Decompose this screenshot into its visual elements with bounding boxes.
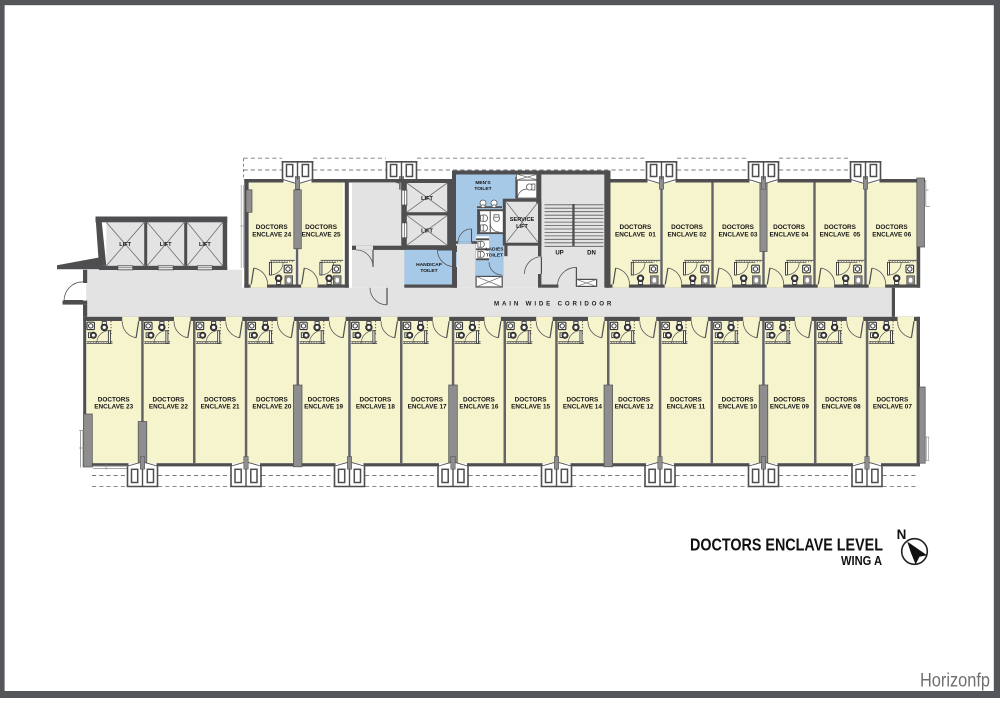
svg-text:LIFT: LIFT	[160, 242, 172, 248]
svg-text:ENCLAVE 24: ENCLAVE 24	[252, 231, 291, 238]
svg-text:DOCTORS: DOCTORS	[773, 396, 806, 403]
svg-text:DOCTORS: DOCTORS	[359, 396, 392, 403]
svg-text:DOCTORS: DOCTORS	[773, 224, 806, 231]
svg-text:ENCLAVE 25: ENCLAVE 25	[302, 231, 341, 238]
svg-text:ENCLAVE 14: ENCLAVE 14	[563, 404, 602, 411]
svg-text:ENCLAVE 02: ENCLAVE 02	[668, 231, 707, 238]
svg-text:DOCTORS: DOCTORS	[204, 396, 237, 403]
svg-text:DOCTORS: DOCTORS	[305, 224, 338, 231]
svg-text:ENCLAVE 10: ENCLAVE 10	[718, 404, 757, 411]
svg-text:DOCTORS: DOCTORS	[825, 396, 858, 403]
svg-text:UP: UP	[555, 250, 563, 256]
svg-text:ENCLAVE 15: ENCLAVE 15	[511, 404, 550, 411]
svg-text:ENCLAVE 20: ENCLAVE 20	[252, 404, 291, 411]
svg-text:LADIES: LADIES	[486, 246, 505, 252]
svg-text:DOCTORS: DOCTORS	[876, 396, 909, 403]
svg-text:DOCTORS: DOCTORS	[722, 396, 755, 403]
svg-text:Horizonfp: Horizonfp	[920, 670, 990, 692]
svg-text:LIFT: LIFT	[421, 196, 433, 202]
svg-text:LIFT: LIFT	[199, 242, 211, 248]
svg-text:DOCTORS: DOCTORS	[256, 396, 289, 403]
svg-text:ENCLAVE 08: ENCLAVE 08	[822, 404, 861, 411]
svg-text:DOCTORS: DOCTORS	[618, 396, 651, 403]
svg-text:DOCTORS: DOCTORS	[463, 396, 496, 403]
svg-text:LIFT: LIFT	[421, 229, 433, 235]
svg-text:ENCLAVE 06: ENCLAVE 06	[872, 231, 911, 238]
svg-text:DOCTORS: DOCTORS	[876, 224, 909, 231]
svg-text:DOCTORS: DOCTORS	[515, 396, 548, 403]
svg-text:M A I N W I D E C O R I D: M A I N W I D E C O R I D O O R	[494, 300, 612, 307]
svg-text:DOCTORS: DOCTORS	[824, 224, 857, 231]
svg-text:DOCTORS: DOCTORS	[308, 396, 341, 403]
svg-text:DOCTORS: DOCTORS	[152, 396, 185, 403]
svg-text:DOCTORS: DOCTORS	[722, 224, 755, 231]
svg-text:N: N	[897, 527, 907, 542]
svg-text:ENCLAVE 05: ENCLAVE 05	[820, 231, 861, 238]
svg-text:DOCTORS: DOCTORS	[671, 224, 704, 231]
svg-text:DOCTORS: DOCTORS	[619, 224, 652, 231]
svg-text:TOILET: TOILET	[474, 186, 491, 192]
svg-text:LIFT: LIFT	[516, 224, 528, 230]
svg-text:DOCTORS: DOCTORS	[411, 396, 444, 403]
svg-text:ENCLAVE 04: ENCLAVE 04	[770, 231, 809, 238]
svg-text:ENCLAVE 18: ENCLAVE 18	[356, 404, 395, 411]
svg-text:TOILET: TOILET	[420, 268, 437, 274]
svg-text:MEN'S: MEN'S	[475, 180, 491, 186]
svg-text:ENCLAVE 16: ENCLAVE 16	[459, 404, 498, 411]
svg-text:DOCTORS ENCLAVE LEVEL: DOCTORS ENCLAVE LEVEL	[690, 535, 883, 555]
svg-text:DOCTORS: DOCTORS	[566, 396, 599, 403]
svg-text:ENCLAVE 07: ENCLAVE 07	[873, 404, 912, 411]
svg-text:DOCTORS: DOCTORS	[98, 396, 131, 403]
svg-text:ENCLAVE 03: ENCLAVE 03	[719, 231, 758, 238]
svg-text:ENCLAVE 11: ENCLAVE 11	[667, 404, 706, 411]
svg-text:ENCLAVE 17: ENCLAVE 17	[408, 404, 447, 411]
svg-text:SERVICE: SERVICE	[510, 217, 535, 223]
svg-text:WING A: WING A	[841, 553, 882, 568]
svg-text:DOCTORS: DOCTORS	[670, 396, 703, 403]
svg-text:LIFT: LIFT	[119, 242, 131, 248]
svg-text:ENCLAVE 19: ENCLAVE 19	[304, 404, 343, 411]
svg-text:ENCLAVE 01: ENCLAVE 01	[615, 231, 656, 238]
svg-text:DOCTORS: DOCTORS	[256, 224, 289, 231]
svg-text:ENCLAVE 22: ENCLAVE 22	[149, 404, 188, 411]
svg-text:HANDICAP: HANDICAP	[416, 262, 443, 268]
svg-text:ENCLAVE 23: ENCLAVE 23	[94, 404, 133, 411]
svg-text:ENCLAVE 09: ENCLAVE 09	[770, 404, 809, 411]
svg-text:TOILET: TOILET	[486, 252, 503, 258]
svg-text:ENCLAVE 12: ENCLAVE 12	[615, 404, 654, 411]
svg-text:DN: DN	[587, 250, 596, 256]
svg-text:ENCLAVE 21: ENCLAVE 21	[201, 404, 240, 411]
